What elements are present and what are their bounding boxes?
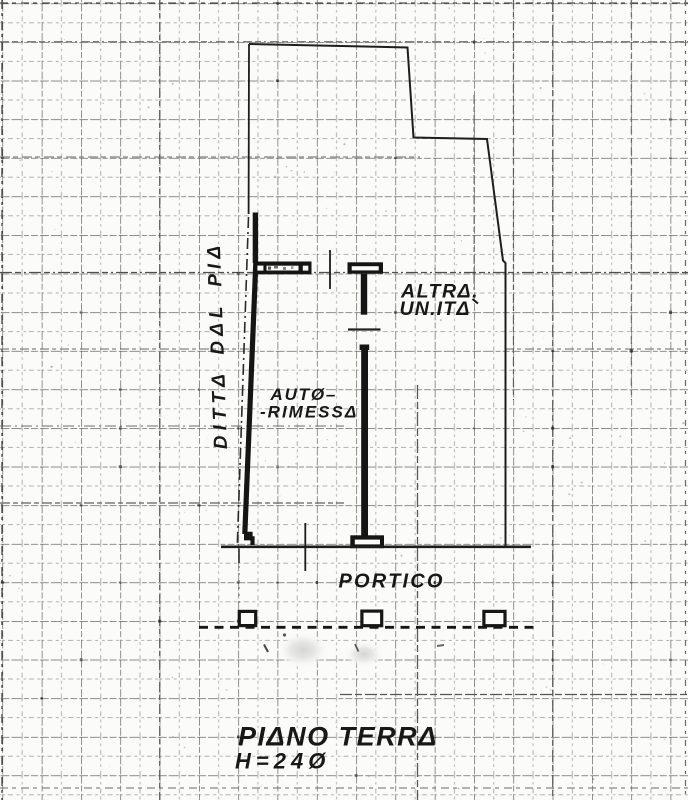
svg-text:H=24Ø: H=24Ø bbox=[235, 749, 330, 774]
svg-text:UN.ITΔ: UN.ITΔ bbox=[400, 298, 471, 320]
svg-text:-RIMESSΔ: -RIMESSΔ bbox=[260, 402, 358, 421]
svg-text:PIΔNO TERRΔ: PIΔNO TERRΔ bbox=[238, 722, 438, 752]
svg-text:AUTØ–: AUTØ– bbox=[270, 385, 338, 404]
svg-text:PORTICO: PORTICO bbox=[339, 571, 445, 593]
